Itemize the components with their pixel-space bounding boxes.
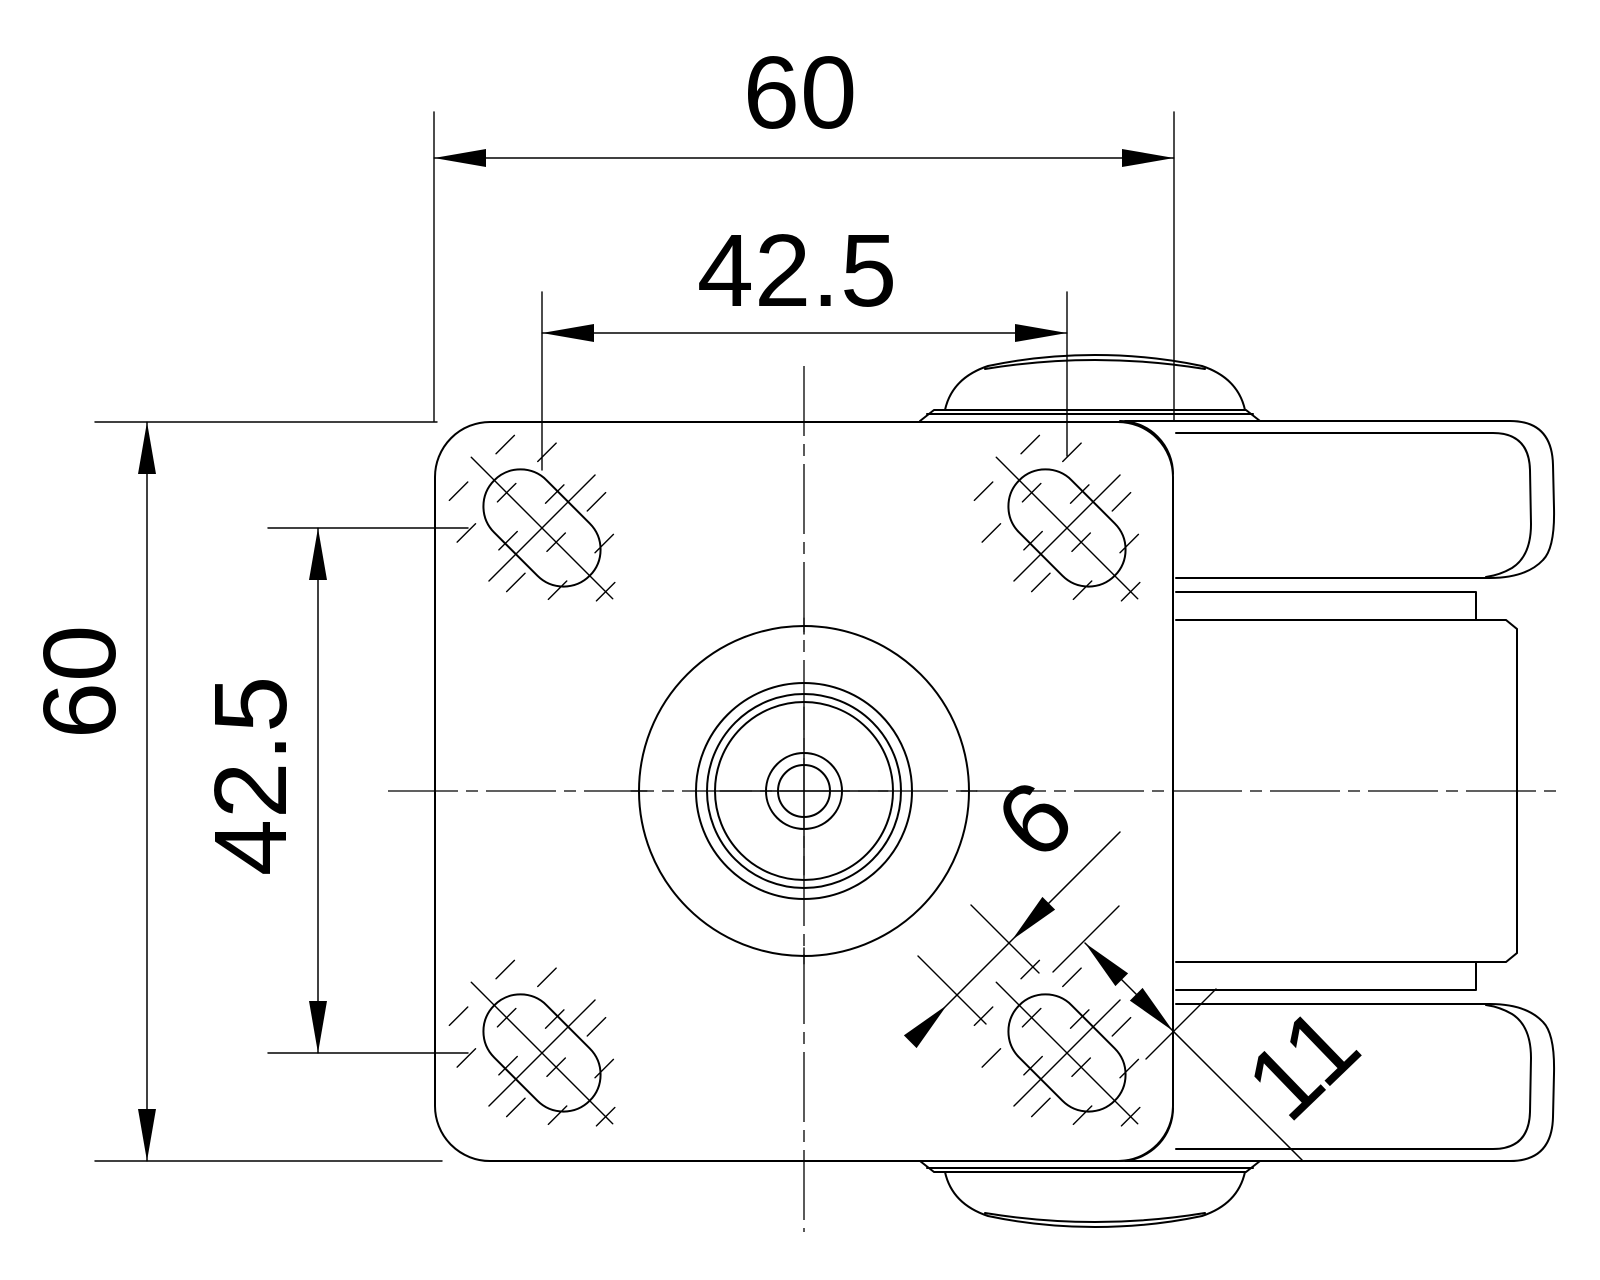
dome-top-base-stack: [920, 410, 1260, 421]
arrow-up-icon: [309, 528, 327, 580]
arrow-right-icon: [1015, 324, 1067, 342]
arrow-up-icon: [138, 422, 156, 474]
dimension-slot-width: 6: [904, 758, 1120, 1048]
dim-slot-width-label: 6: [974, 758, 1095, 881]
dimension-slot-length: 11: [1053, 906, 1381, 1160]
dim-plate-height-label: 60: [22, 625, 137, 740]
caster-technical-drawing: 60 42.5 60 42.5 6 11: [0, 0, 1600, 1280]
dim-plate-width-label: 60: [743, 35, 858, 150]
slot-length-extension-lines: [1053, 906, 1216, 1059]
arrow-nw-icon: [1079, 937, 1128, 986]
arrow-se-icon: [1130, 988, 1179, 1037]
dome-bottom-base-stack: [920, 1161, 1260, 1172]
tire-top-shoulder-arc: [1120, 421, 1173, 474]
arrow-down-icon: [138, 1109, 156, 1161]
dome-bottom-outline: [945, 1172, 1245, 1227]
arrow-sw-icon: [1006, 897, 1055, 946]
arrow-down-icon: [309, 1001, 327, 1053]
arrow-right-icon: [1122, 149, 1174, 167]
slot-bottom-right: [943, 929, 1190, 1176]
dim-bolt-spacing-horizontal-label: 42.5: [697, 213, 897, 328]
yoke-dome-top: [920, 355, 1260, 421]
arrow-left-icon: [542, 324, 594, 342]
drawing-canvas: 60 42.5 60 42.5 6 11: [0, 0, 1600, 1280]
boss-center-mark: [720, 707, 888, 875]
tire-bottom-shoulder-arc: [1120, 1108, 1173, 1161]
tire-top-inner-contour: [1176, 433, 1531, 577]
dim-bolt-spacing-vertical-label: 42.5: [193, 676, 308, 876]
arrow-left-icon: [434, 149, 486, 167]
arrow-ne-icon: [904, 999, 953, 1048]
tire-top-outer-contour: [1125, 421, 1554, 578]
hub-flange-bottom: [1176, 962, 1476, 990]
hub-flange-top: [1176, 592, 1476, 620]
dome-top-outline: [945, 355, 1245, 410]
yoke-dome-bottom: [920, 1161, 1260, 1227]
dim-slot-length-label: 11: [1224, 985, 1381, 1142]
